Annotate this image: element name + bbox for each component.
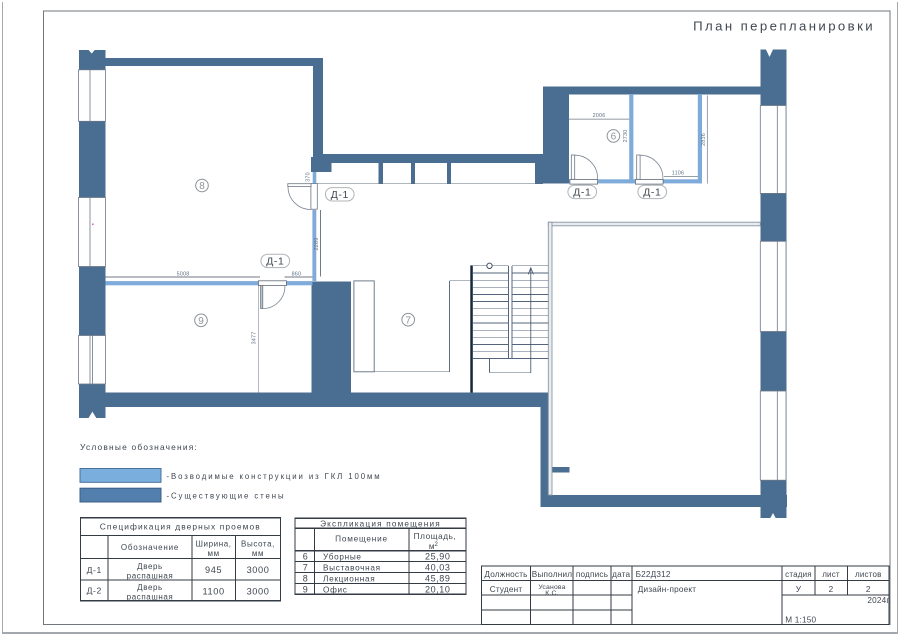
svg-text:Д-2: Д-2	[87, 586, 102, 596]
svg-text:мм: мм	[207, 549, 219, 558]
svg-text:2836: 2836	[701, 133, 707, 146]
svg-text:40,03: 40,03	[425, 562, 451, 572]
svg-text:мм: мм	[252, 549, 264, 558]
svg-text:Обозначение: Обозначение	[121, 543, 179, 552]
svg-text:Условные обозначения:: Условные обозначения:	[80, 442, 198, 452]
svg-text:1106: 1106	[672, 171, 684, 177]
svg-text:7: 7	[303, 562, 309, 572]
svg-text:Д-1: Д-1	[573, 188, 591, 199]
svg-text:Д-1: Д-1	[331, 190, 349, 201]
svg-text:стадия: стадия	[785, 570, 812, 579]
svg-text:Экспликация помещения: Экспликация помещения	[320, 519, 441, 528]
svg-text:370: 370	[306, 172, 312, 182]
svg-text:20,10: 20,10	[425, 584, 451, 594]
svg-text:Дверь: Дверь	[137, 562, 163, 571]
svg-text:6: 6	[303, 551, 309, 561]
svg-text:8: 8	[303, 573, 309, 583]
svg-text:Д-1: Д-1	[266, 257, 284, 268]
svg-text:листов: листов	[855, 570, 882, 579]
svg-text:Высота,: Высота,	[241, 540, 275, 549]
svg-text:Выставочная: Выставочная	[323, 563, 381, 572]
svg-text:Дизайн-проект: Дизайн-проект	[638, 585, 696, 594]
svg-text:2: 2	[866, 585, 871, 594]
svg-text:распашная: распашная	[127, 592, 174, 601]
svg-text:5008: 5008	[177, 271, 190, 277]
svg-text:План перепланировки: План перепланировки	[693, 19, 875, 34]
svg-text:3477: 3477	[252, 332, 258, 345]
svg-text:2730: 2730	[623, 130, 629, 143]
svg-text:М 1:150: М 1:150	[785, 616, 816, 625]
svg-text:Ширина,: Ширина,	[196, 540, 232, 549]
svg-text:6: 6	[611, 132, 617, 143]
svg-text:945: 945	[205, 565, 222, 575]
svg-text:подпись: подпись	[576, 570, 608, 579]
svg-text:Должность: Должность	[484, 570, 527, 579]
svg-text:К.С.: К.С.	[545, 590, 558, 597]
svg-text:Д-1: Д-1	[87, 565, 102, 575]
svg-text:-Возводимые конструкции из ГКЛ: -Возводимые конструкции из ГКЛ 100мм	[167, 472, 382, 481]
svg-text:1100: 1100	[203, 586, 225, 596]
svg-text:распашная: распашная	[127, 572, 174, 581]
svg-text:Лекционная: Лекционная	[323, 574, 375, 583]
svg-text:25,90: 25,90	[425, 551, 451, 561]
svg-text:3000: 3000	[247, 565, 270, 575]
svg-text:2: 2	[829, 585, 834, 594]
svg-text:2024г.: 2024г.	[867, 596, 891, 605]
svg-text:Уборные: Уборные	[323, 552, 362, 561]
svg-text:Б22Д312: Б22Д312	[636, 570, 671, 579]
svg-text:2289: 2289	[314, 238, 320, 251]
svg-text:2006: 2006	[593, 113, 606, 119]
svg-text:8: 8	[199, 181, 205, 192]
svg-text:-Существующие стены: -Существующие стены	[167, 492, 286, 501]
svg-text:7: 7	[405, 315, 411, 326]
svg-text:Помещение: Помещение	[335, 534, 388, 543]
svg-text:2: 2	[435, 542, 439, 548]
svg-text:дата: дата	[612, 570, 630, 579]
svg-text:Студент: Студент	[490, 585, 523, 594]
svg-text:Д-1: Д-1	[643, 188, 661, 199]
svg-text:45,89: 45,89	[425, 573, 451, 583]
svg-text:Выполнил: Выполнил	[532, 570, 572, 579]
svg-text:Офис: Офис	[323, 585, 348, 594]
svg-text:лист: лист	[822, 570, 840, 579]
svg-text:860: 860	[292, 271, 302, 277]
svg-text:9: 9	[303, 584, 309, 594]
svg-text:9: 9	[198, 316, 204, 327]
svg-text:Спецификация дверных проемов: Спецификация дверных проемов	[100, 521, 261, 531]
svg-text:Площадь,: Площадь,	[414, 532, 457, 541]
svg-text:Дверь: Дверь	[137, 583, 163, 592]
svg-text:3000: 3000	[247, 586, 270, 596]
svg-text:У: У	[796, 585, 802, 594]
